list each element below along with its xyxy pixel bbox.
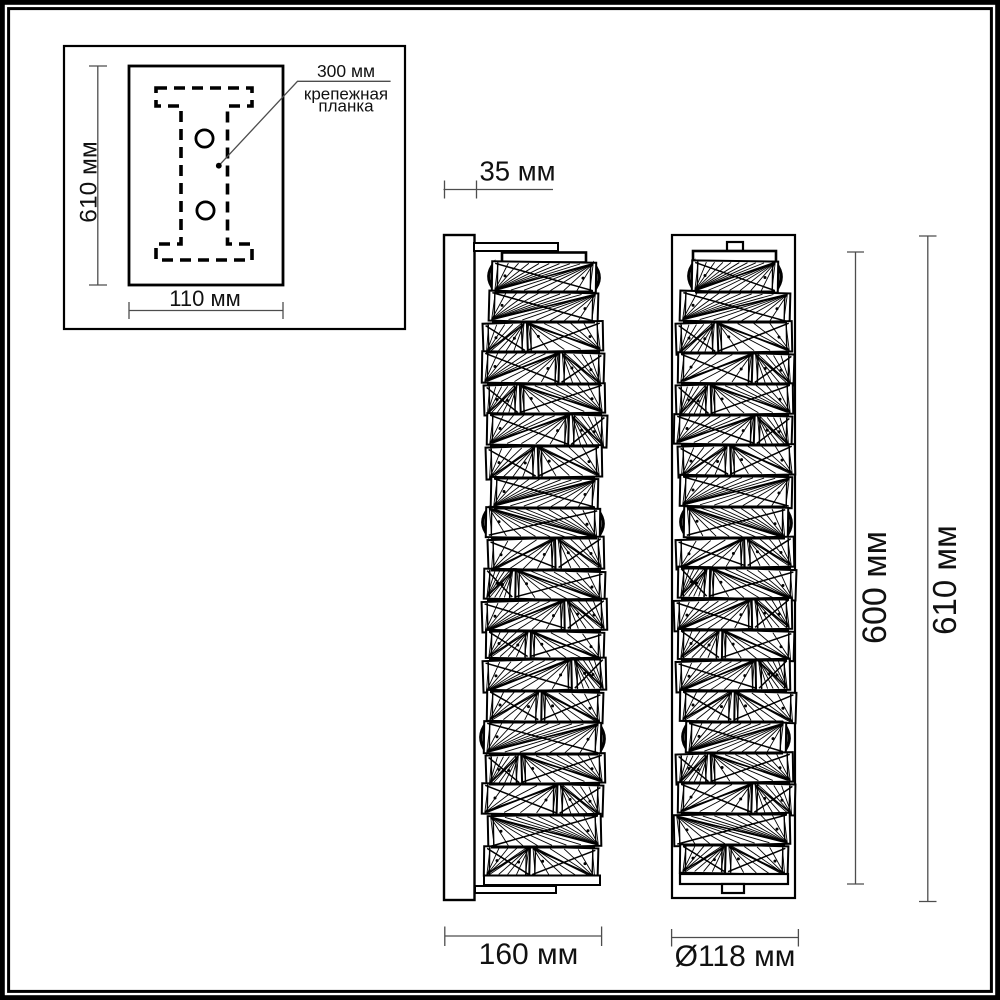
svg-text:110 мм: 110 мм — [169, 286, 240, 311]
svg-text:610 мм: 610 мм — [926, 525, 963, 635]
svg-text:планка: планка — [318, 97, 374, 116]
svg-text:610 мм: 610 мм — [76, 141, 103, 222]
svg-text:300 мм: 300 мм — [317, 61, 375, 81]
svg-text:35 мм: 35 мм — [479, 156, 555, 187]
svg-text:Ø118 мм: Ø118 мм — [675, 940, 796, 973]
svg-text:600 мм: 600 мм — [856, 531, 894, 644]
svg-text:160 мм: 160 мм — [479, 938, 579, 971]
